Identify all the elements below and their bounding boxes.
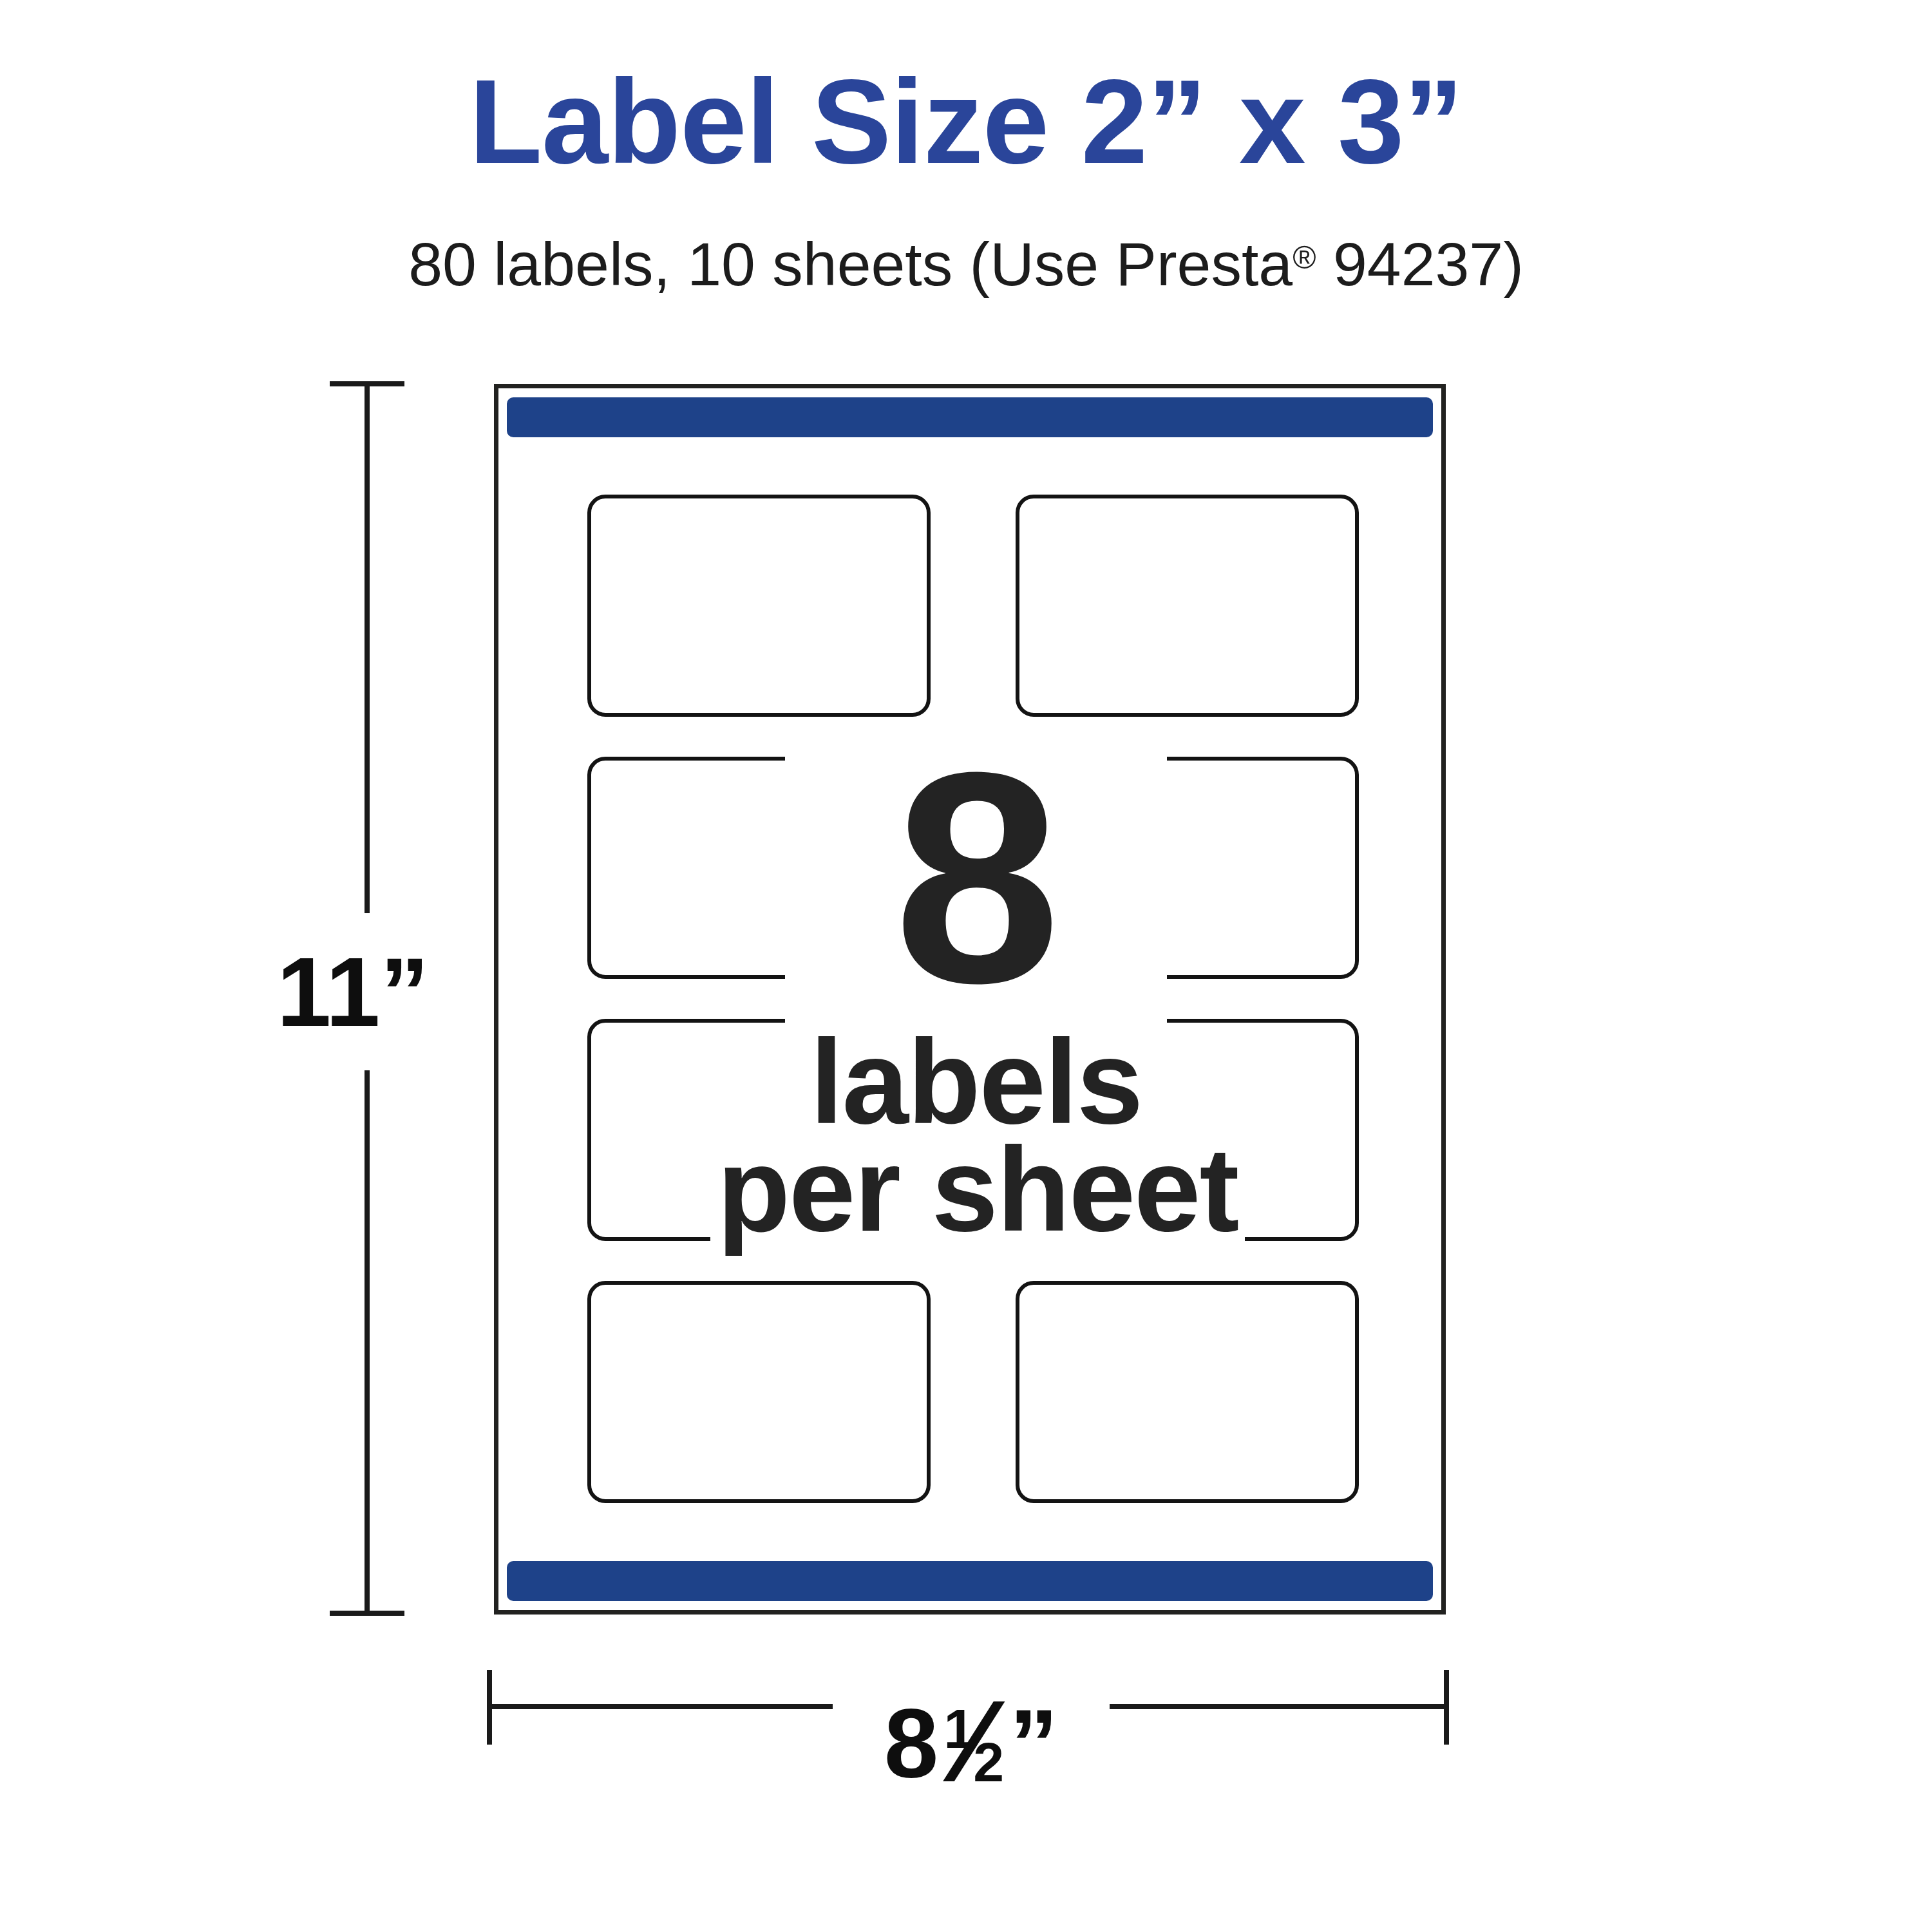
width-dimension-right-tick <box>1444 1670 1449 1745</box>
inch-mark: ” <box>1009 1687 1058 1800</box>
labels-count-number: 8 <box>785 751 1167 1005</box>
sheet-top-blue-bar <box>507 397 1433 437</box>
width-dimension-label: 81⁄2” <box>833 1653 1110 1758</box>
subtitle-prefix: 80 labels, 10 sheets (Use Presta <box>408 230 1293 298</box>
label-cell <box>587 1281 931 1503</box>
sheet-bottom-blue-bar <box>507 1561 1433 1601</box>
registered-trademark-symbol: ® <box>1293 240 1316 275</box>
label-cell <box>1016 495 1359 717</box>
labels-count-text-line2: per sheet <box>710 1141 1245 1264</box>
label-cell <box>587 495 931 717</box>
subtitle: 80 labels, 10 sheets (Use Presta® 94237) <box>0 213 1932 309</box>
height-dimension-top-tick <box>330 381 404 386</box>
label-spec-diagram: Label Size 2” x 3” 80 labels, 10 sheets … <box>0 0 1932 1932</box>
labels-count-text-line1: labels <box>785 1005 1167 1141</box>
width-whole-number: 8 <box>884 1687 939 1800</box>
height-dimension-label: 11” <box>269 913 437 1070</box>
width-dimension-left-tick <box>487 1670 492 1745</box>
height-dimension-bottom-tick <box>330 1611 404 1616</box>
subtitle-suffix: 94237) <box>1316 230 1524 298</box>
page-title: Label Size 2” x 3” <box>0 62 1932 182</box>
label-cell <box>1016 1281 1359 1503</box>
width-fraction-denominator: 2 <box>973 1730 1004 1794</box>
